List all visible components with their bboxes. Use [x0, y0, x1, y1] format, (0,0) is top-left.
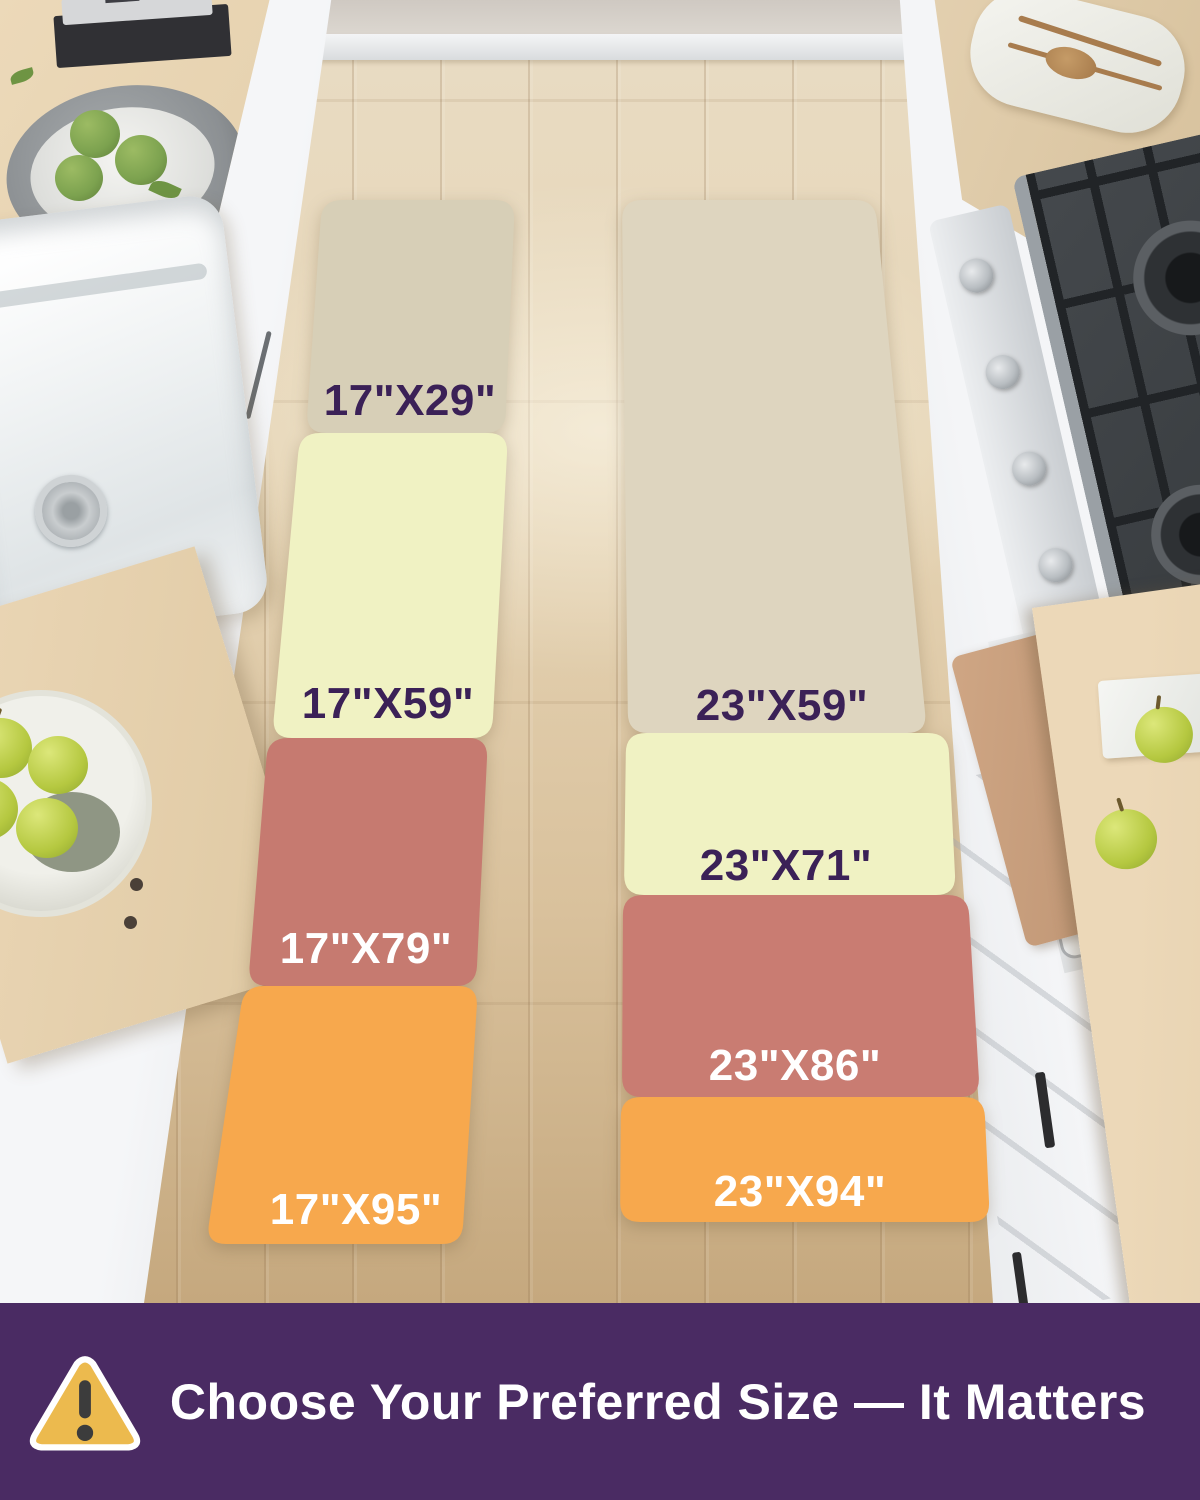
mat-size-label: 23"X71": [700, 841, 872, 890]
exclamation-dot: [77, 1424, 93, 1440]
warning-banner: Choose Your Preferred Size — It Matters: [0, 1303, 1200, 1500]
mat-size-label: 17"X79": [280, 924, 452, 973]
warning-triangle-icon: [26, 1346, 144, 1458]
mat-size-label: 23"X59": [696, 681, 868, 730]
banner-text: Choose Your Preferred Size — It Matters: [144, 1373, 1200, 1431]
mat-size-label: 17"X59": [302, 679, 474, 728]
mat-size-label: 23"X94": [714, 1167, 886, 1216]
mat-size-label: 17"X95": [270, 1185, 442, 1234]
exclamation-bar: [79, 1380, 91, 1418]
mat-23x59: [622, 200, 925, 733]
mat-size-label: 17"X29": [324, 376, 496, 425]
kitchen-mat-size-infographic: 17"X29" 17"X59" 17"X79" 17"X95" 23"X59" …: [0, 0, 1200, 1500]
mat-size-label: 23"X86": [709, 1041, 881, 1090]
mat-size-overlay: 17"X29" 17"X59" 17"X79" 17"X95" 23"X59" …: [0, 0, 1200, 1303]
